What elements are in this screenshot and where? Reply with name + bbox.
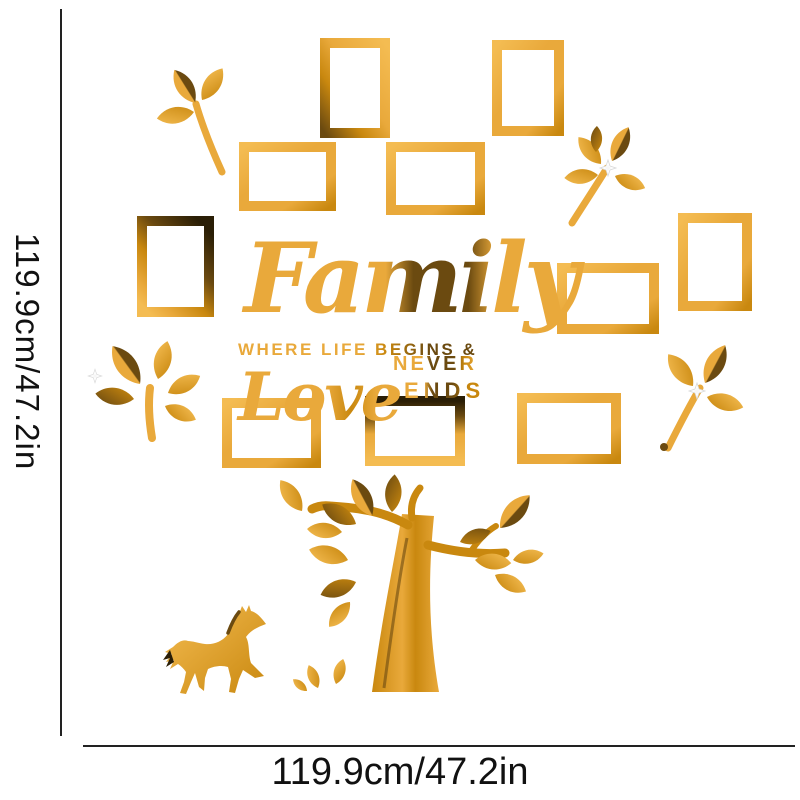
photo-frame-landscape bbox=[391, 147, 480, 210]
photo-frame-portrait bbox=[497, 45, 559, 131]
tree-decal bbox=[274, 474, 545, 694]
photo-frame-portrait bbox=[683, 218, 747, 306]
decal-artwork: Family WHERE LIFE BEGINS & Love NEVER EN… bbox=[0, 0, 800, 800]
branch-right-lower-decal bbox=[660, 341, 745, 451]
horse-body bbox=[165, 605, 266, 694]
photo-frame-landscape bbox=[562, 268, 654, 329]
horse-decal bbox=[163, 605, 266, 694]
ends-text: ENDS bbox=[404, 378, 485, 403]
branch-curl-dot bbox=[660, 443, 668, 451]
product-image: 119.9cm/47.2in 119.9cm/47.2in bbox=[0, 0, 800, 800]
photo-frame-landscape bbox=[244, 147, 331, 206]
branch-top-left-decal bbox=[155, 64, 229, 172]
photo-frame-portrait bbox=[325, 43, 385, 133]
love-script-text: Love bbox=[236, 358, 401, 436]
never-text: NEVER bbox=[393, 353, 477, 375]
photo-frame-landscape bbox=[522, 398, 616, 459]
photo-frame-portrait bbox=[142, 221, 209, 312]
branch-right-upper-decal bbox=[564, 124, 648, 223]
family-script-text: Family bbox=[241, 222, 586, 335]
branch-left-middle-decal bbox=[94, 339, 204, 438]
